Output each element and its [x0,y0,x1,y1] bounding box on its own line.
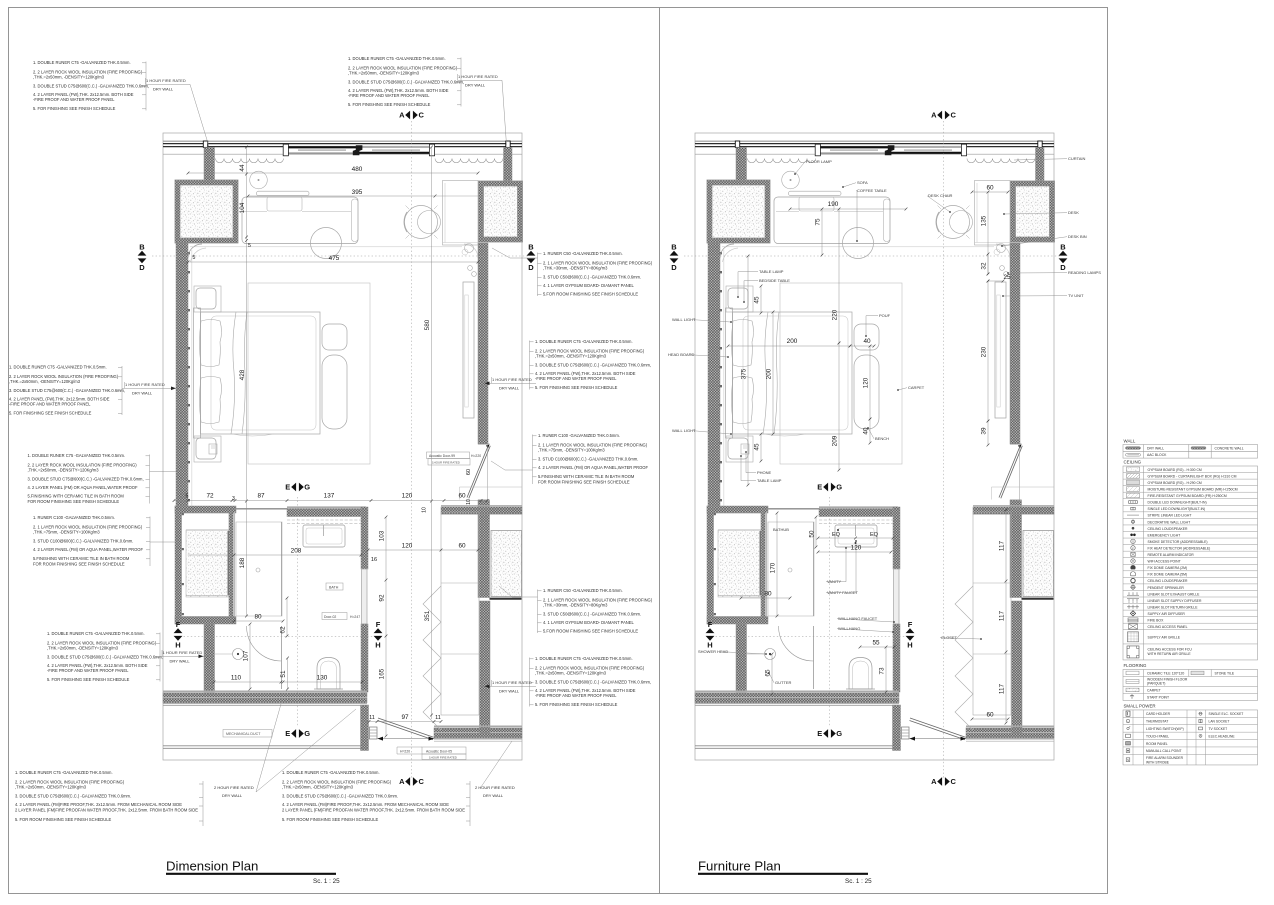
svg-text:209: 209 [832,435,839,446]
svg-text:H=247: H=247 [350,615,360,619]
svg-text:51: 51 [280,670,287,678]
svg-text:PENDENT SPRINKLER: PENDENT SPRINKLER [1148,586,1185,590]
svg-text:WALL: WALL [1124,439,1136,444]
svg-text:5. FOR FINISHING SEE FINISH SC: 5. FOR FINISHING SEE FINISH SCHEDULE [535,385,618,390]
svg-text:COFFEE TABLE: COFFEE TABLE [857,188,887,193]
svg-text:3. DOUBLE STUD C75@600(C.C.) -: 3. DOUBLE STUD C75@600(C.C.) -GALVANIZED… [28,477,144,482]
svg-text:-FIRE PROOF AND WATER PROOF PA: -FIRE PROOF AND WATER PROOF PANEL [348,93,430,98]
svg-text:MANUALL CALL POINT: MANUALL CALL POINT [1146,749,1181,753]
svg-text:WITH STROBE: WITH STROBE [1146,760,1170,764]
svg-text:2 LAYER PANEL (FM)FIRE PROOFAN: 2 LAYER PANEL (FM)FIRE PROOFAN WATER PRO… [282,808,465,813]
svg-text:DRY WALL: DRY WALL [483,793,504,798]
svg-text:H: H [707,640,712,649]
svg-text:B: B [528,242,534,251]
svg-text:E: E [285,483,290,492]
svg-text:PHONE: PHONE [757,470,772,475]
svg-text:SUPPLY AIR DIFFUSER: SUPPLY AIR DIFFUSER [1148,612,1186,616]
svg-text:4. 2 LAYER PANEL (FM) OR AQUA: 4. 2 LAYER PANEL (FM) OR AQUA PANEL,WATE… [33,547,143,552]
svg-text:FOR ROOM FINISHING SEE FINISH: FOR ROOM FINISHING SEE FINISH SCHEDULE [28,499,120,504]
svg-text:C: C [950,111,956,120]
svg-text:,THK.=75mm, -DENSITY=100Kg/m3: ,THK.=75mm, -DENSITY=100Kg/m3 [538,448,605,453]
svg-text:,THK.=30mm, -DENSITY=80Kg/m3: ,THK.=30mm, -DENSITY=80Kg/m3 [543,266,608,271]
svg-text:3: 3 [232,496,235,502]
svg-text:STRIPE LINEAR LED LIGHT: STRIPE LINEAR LED LIGHT [1148,514,1192,518]
svg-text:4. 2 LAYER PANEL (FM) OR AQUA: 4. 2 LAYER PANEL (FM) OR AQUA PANEL,WATE… [538,465,648,470]
svg-text:165: 165 [379,668,386,679]
svg-text:SOFA: SOFA [857,180,868,185]
svg-text:ROOM PANEL: ROOM PANEL [1146,742,1168,746]
svg-text:3. DOUBLE STUD C75@600(C.C.) -: 3. DOUBLE STUD C75@600(C.C.) -GALVANIZED… [348,80,464,85]
svg-text:117: 117 [999,540,1006,551]
svg-text:FIX DOME CAMERA (5M): FIX DOME CAMERA (5M) [1148,573,1188,577]
svg-text:,THK.=2x50mm, -DENSITY=120Kg/m: ,THK.=2x50mm, -DENSITY=120Kg/m3 [348,71,420,76]
svg-text:60: 60 [458,493,466,500]
svg-text:135: 135 [981,215,988,226]
svg-text:170: 170 [770,562,777,573]
svg-text:120: 120 [863,377,870,388]
svg-text:50: 50 [809,530,816,538]
svg-text:DESK: DESK [1068,210,1079,215]
svg-text:SMOKE DETECTOR (ADDRESSABLE): SMOKE DETECTOR (ADDRESSABLE) [1148,540,1208,544]
svg-text:WALL LIGHT: WALL LIGHT [672,317,696,322]
svg-text:-FIRE PROOF AND WATER PROOF PA: -FIRE PROOF AND WATER PROOF PANEL [535,693,617,698]
svg-text:C: C [418,777,424,786]
svg-text:200: 200 [787,338,798,345]
svg-text:A: A [399,111,405,120]
svg-text:FOR ROOM FINISHING SEE FINISH: FOR ROOM FINISHING SEE FINISH SCHEDULE [538,480,630,485]
svg-text:,THK.=2x50mm, -DENSITY=120Kg/m: ,THK.=2x50mm, -DENSITY=120Kg/m3 [535,671,607,676]
svg-text:5. FOR FINISHING SEE FINISH SC: 5. FOR FINISHING SEE FINISH SCHEDULE [47,677,130,682]
svg-text:73: 73 [879,667,886,675]
svg-text:97: 97 [401,714,409,721]
svg-text:60: 60 [466,469,472,475]
svg-text:TV SOCKET: TV SOCKET [1209,727,1228,731]
svg-text:C: C [950,777,956,786]
svg-text:1. DOUBLE RUNER C75 -GALVANIZE: 1. DOUBLE RUNER C75 -GALVANIZED THK.0.5m… [28,453,126,458]
svg-text:STONE TILE: STONE TILE [1215,671,1235,675]
svg-text:3. DOUBLE STUD C75@600(C.C.) -: 3. DOUBLE STUD C75@600(C.C.) -GALVANIZED… [282,794,398,799]
svg-text:A: A [931,777,937,786]
svg-text:120: 120 [402,493,413,500]
svg-text:60: 60 [458,543,466,550]
svg-text:LINEAR SLOT SUPPLY DIFFUSER: LINEAR SLOT SUPPLY DIFFUSER [1148,599,1202,603]
svg-text:CEILING ACCESS PANEL: CEILING ACCESS PANEL [1148,625,1188,629]
svg-text:H: H [175,640,180,649]
svg-text:1. DOUBLE RUNER C75 -GALVANIZE: 1. DOUBLE RUNER C75 -GALVANIZED THK.0.5m… [348,56,446,61]
svg-text:5. FOR ROOM FINISHING SEE FINI: 5. FOR ROOM FINISHING SEE FINISH SCHEDUL… [15,817,111,822]
svg-text:80: 80 [254,614,262,621]
svg-text:-FIRE PROOF AND WATER PROOF PA: -FIRE PROOF AND WATER PROOF PANEL [33,97,115,102]
svg-text:-FIRE PROOF AND WATER PROOF PA: -FIRE PROOF AND WATER PROOF PANEL [535,376,617,381]
svg-text:DRY WALL: DRY WALL [132,390,153,395]
svg-text:F: F [376,620,381,629]
svg-text:75: 75 [815,218,822,226]
svg-text:SINGLE LED DOWNLIGHT(BUILT-IN): SINGLE LED DOWNLIGHT(BUILT-IN) [1148,507,1206,511]
svg-text:3. DOUBLE STUD C75@600(C.C.) -: 3. DOUBLE STUD C75@600(C.C.) -GALVANIZED… [15,794,131,799]
svg-text:Door-02: Door-02 [324,615,336,619]
svg-text:580: 580 [424,319,431,330]
svg-text:351: 351 [424,610,431,621]
svg-text:A: A [931,111,937,120]
svg-text:1. DOUBLE RUNER C75 -GALVANIZE: 1. DOUBLE RUNER C75 -GALVANIZED THK.0.5m… [47,631,145,636]
svg-text:THERMOSTAT: THERMOSTAT [1146,720,1168,724]
svg-text:FLOOR LAMP: FLOOR LAMP [806,159,832,164]
svg-text:F: F [176,620,181,629]
svg-text:4. 2 LAYER PANEL (FM)FIRE PROO: 4. 2 LAYER PANEL (FM)FIRE PROOF,THK. 2x1… [282,802,449,807]
svg-text:1. RUNER C100 -GALVANIZED THK.: 1. RUNER C100 -GALVANIZED THK.0.5mm. [33,515,115,520]
svg-text:55: 55 [872,640,880,647]
svg-text:120: 120 [851,545,862,552]
svg-text:40: 40 [863,427,870,435]
svg-text:60: 60 [986,712,994,719]
svg-text:3. STUD C100@600(C.C.) -GALVAN: 3. STUD C100@600(C.C.) -GALVANIZED THK.0… [33,539,133,544]
svg-text:110: 110 [231,675,242,682]
svg-text:40: 40 [863,338,871,345]
svg-text:1 HOUR FIRE RATED: 1 HOUR FIRE RATED [492,680,532,685]
svg-text:1. DOUBLE RUNER C75 -GALVANIZE: 1. DOUBLE RUNER C75 -GALVANIZED THK.0.5m… [535,656,633,661]
svg-text:1. DOUBLE RUNER C75 -GALVANIZE: 1. DOUBLE RUNER C75 -GALVANIZED THK.0.5m… [9,365,107,370]
svg-text:5: 5 [248,243,251,249]
svg-text:B: B [1060,242,1066,251]
svg-text:WALL LIGHT: WALL LIGHT [672,428,696,433]
svg-text:BATHUB: BATHUB [773,527,789,532]
svg-text:3. DOUBLE STUD C75@600(C.C.) -: 3. DOUBLE STUD C75@600(C.C.) -GALVANIZED… [47,655,163,660]
svg-text:S: S [1132,540,1134,544]
svg-text:DRY WALL: DRY WALL [499,385,520,390]
svg-text:3. STUD C50@600(C.C.) -GALVANI: 3. STUD C50@600(C.C.) -GALVANIZED THK.0.… [543,275,641,280]
svg-text:65: 65 [765,669,772,677]
svg-text:11: 11 [435,715,441,721]
svg-text:-FIRE PROOF AND WATER PROOF PA: -FIRE PROOF AND WATER PROOF PANEL [47,668,129,673]
svg-text:11: 11 [369,715,375,721]
svg-text:TOUCH PANEL: TOUCH PANEL [1146,734,1169,738]
svg-text:E: E [817,729,822,738]
svg-text:1. DOUBLE RUNER C75 -GALVANIZE: 1. DOUBLE RUNER C75 -GALVANIZED THK.0.5m… [282,770,380,775]
svg-text:READING LAMPS: READING LAMPS [1068,270,1101,275]
svg-text:428: 428 [239,369,246,380]
svg-text:1 HOUR FIRE RATED: 1 HOUR FIRE RATED [146,78,186,83]
svg-text:ELEC.HEADLINE: ELEC.HEADLINE [1209,734,1236,738]
svg-text:92: 92 [379,594,386,602]
svg-text:A: A [399,777,405,786]
svg-text:1. DOUBLE RUNER C75 -GALVANIZE: 1. DOUBLE RUNER C75 -GALVANIZED THK.0.5m… [15,770,113,775]
svg-text:5.FINISHING WITH CERAMIC TILE: 5.FINISHING WITH CERAMIC TILE IN BATH RO… [33,556,130,561]
svg-text:1 HOUR FIRE RATED: 1 HOUR FIRE RATED [163,650,203,655]
svg-text:4. 1 LAYER GYPSUM BOARD- DIAMA: 4. 1 LAYER GYPSUM BOARD- DIAMANT PANEL [543,283,634,288]
svg-text:137: 137 [324,493,335,500]
svg-text:Sc. 1 : 25: Sc. 1 : 25 [313,878,340,885]
svg-text:,THK.=75mm, -DENSITY=100Kg/m3: ,THK.=75mm, -DENSITY=100Kg/m3 [33,530,100,535]
svg-text:5. FOR FINISHING SEE FINISH SC: 5. FOR FINISHING SEE FINISH SCHEDULE [9,411,92,416]
svg-text:GYPSUM BOARD - CURTAIN/LIGHT B: GYPSUM BOARD - CURTAIN/LIGHT BOX (RG) H:… [1148,474,1237,478]
svg-text:DOUBLE LED DOWNLIGHT(BUILT-IN): DOUBLE LED DOWNLIGHT(BUILT-IN) [1148,501,1207,505]
svg-text:HEAD BOARD: HEAD BOARD [668,352,695,357]
svg-text:,THK.=2x50mm, -DENSITY=120Kg/m: ,THK.=2x50mm, -DENSITY=120Kg/m3 [535,354,607,359]
svg-text:,THK.=2x50mm, -DENSITY=120Kg/m: ,THK.=2x50mm, -DENSITY=120Kg/m3 [15,785,87,790]
svg-text:5: 5 [186,494,189,500]
svg-text:104: 104 [239,202,246,213]
svg-text:5. FOR FINISHING SEE FINISH SC: 5. FOR FINISHING SEE FINISH SCHEDULE [348,102,431,107]
svg-text:,THK.=2x50mm, -DENSITY=120Kg/m: ,THK.=2x50mm, -DENSITY=120Kg/m3 [9,379,81,384]
svg-text:190: 190 [828,201,839,208]
svg-text:CEILING ACCESS FOR FCU: CEILING ACCESS FOR FCU [1148,648,1193,652]
svg-text:39: 39 [981,427,988,435]
svg-text:F: F [908,620,913,629]
svg-text:LIGHTING SWITCH(W.P): LIGHTING SWITCH(W.P) [1146,727,1184,731]
svg-text:E: E [817,483,822,492]
svg-text:AAC BLOCK: AAC BLOCK [1147,453,1167,457]
svg-text:62: 62 [280,626,287,634]
svg-text:5.FINISHING WITH CERAMIC TILE: 5.FINISHING WITH CERAMIC TILE IN BATH RO… [538,474,635,479]
svg-text:230: 230 [981,346,988,357]
svg-text:WALLHANG FAUCET: WALLHANG FAUCET [838,616,878,621]
svg-text:EQ: EQ [832,532,841,538]
svg-text:START POINT: START POINT [1147,696,1169,700]
svg-text:1HOUR FIRE RATED: 1HOUR FIRE RATED [432,461,460,465]
svg-text:2 HOUR FIRE RATED: 2 HOUR FIRE RATED [214,785,254,790]
svg-text:FIRE-RESISTANT GYPSUM BOARD (F: FIRE-RESISTANT GYPSUM BOARD (FR) H:250CM [1148,494,1227,498]
svg-text:EMERGENCY LIGHT: EMERGENCY LIGHT [1148,533,1181,537]
svg-text:LINEAR SLOT EXHAUST GRILLE: LINEAR SLOT EXHAUST GRILLE [1148,592,1201,596]
svg-text:4. 1 LAYER GYPSUM BOARD- DIAMA: 4. 1 LAYER GYPSUM BOARD- DIAMANT PANEL [543,620,634,625]
svg-text:DRY WALL: DRY WALL [153,86,174,91]
svg-text:,THK.=2x50mm, -DENSITY=120Kg/m: ,THK.=2x50mm, -DENSITY=120Kg/m3 [28,468,100,473]
svg-text:S: S [1127,758,1129,762]
svg-text:H: H [375,640,380,649]
svg-text:10: 10 [466,499,472,505]
svg-text:E: E [285,729,290,738]
svg-text:EQ: EQ [870,532,879,538]
svg-text:Acoustic Door-99: Acoustic Door-99 [429,454,455,458]
svg-text:130: 130 [317,675,328,682]
svg-text:3. DOUBLE STUD C75@600(C.C.) -: 3. DOUBLE STUD C75@600(C.C.) -GALVANIZED… [33,84,149,89]
svg-text:,THK.=30mm, -DENSITY=80Kg/m3: ,THK.=30mm, -DENSITY=80Kg/m3 [543,603,608,608]
svg-text:MOISTURE-RESISTANT GYPSUM BOAR: MOISTURE-RESISTANT GYPSUM BOARD (MR) H:2… [1148,488,1238,492]
svg-text:1. DOUBLE RUNER C75 -GALVANIZE: 1. DOUBLE RUNER C75 -GALVANIZED THK.0.5m… [33,60,131,65]
svg-text:Acoustic Door-05: Acoustic Door-05 [426,749,452,753]
svg-text:,THK.=2x50mm, -DENSITY=120Kg/m: ,THK.=2x50mm, -DENSITY=120Kg/m3 [282,785,354,790]
svg-text:80: 80 [764,591,772,598]
svg-text:FLOORING: FLOORING [1124,663,1148,668]
svg-text:FOR ROOM FINISHING SEE FINISH: FOR ROOM FINISHING SEE FINISH SCHEDULE [33,562,125,567]
svg-text:D: D [139,263,145,272]
svg-text:3. DOUBLE STUD C75@600(C.C.) -: 3. DOUBLE STUD C75@600(C.C.) -GALVANIZED… [9,388,125,393]
svg-text:(PARQUET): (PARQUET) [1147,682,1165,686]
svg-text:H=220: H=220 [471,454,481,458]
svg-text:DRY WALL: DRY WALL [170,658,191,663]
svg-text:F: F [708,620,713,629]
svg-text:H: H [907,640,912,649]
svg-text:TABLE LAMP: TABLE LAMP [759,269,784,274]
svg-text:4. 2 LAYER PANEL (FM)FIRE PROO: 4. 2 LAYER PANEL (FM)FIRE PROOF,THK. 2x1… [15,802,182,807]
svg-text:5.FINISHING WITH CERAMIC TILE: 5.FINISHING WITH CERAMIC TILE IN BATH RO… [28,494,125,499]
svg-text:45: 45 [754,296,761,304]
svg-text:DECORATIVE WALL LIGHT: DECORATIVE WALL LIGHT [1148,520,1191,524]
svg-text:5.FOR ROOM FINISHING SEE FINIS: 5.FOR ROOM FINISHING SEE FINISH SCHEDULE [543,292,638,297]
svg-text:1. RUNER C50 -GALVANIZED THK.0: 1. RUNER C50 -GALVANIZED THK.0.5mm. [543,251,623,256]
svg-text:CEILING LOUDSPEAKER: CEILING LOUDSPEAKER [1148,527,1188,531]
svg-text:Dimension Plan: Dimension Plan [166,859,258,874]
svg-text:25: 25 [1003,274,1011,281]
svg-text:1 HOUR FIRE RATED: 1 HOUR FIRE RATED [125,382,165,387]
svg-text:DRY WALL: DRY WALL [499,688,520,693]
svg-text:72: 72 [206,493,214,500]
svg-text:H=220: H=220 [400,749,410,753]
svg-text:G: G [304,483,310,492]
svg-text:480: 480 [352,166,363,173]
svg-text:3. STUD C50@600(C.C.) -GALVANI: 3. STUD C50@600(C.C.) -GALVANIZED THK.0.… [543,612,641,617]
svg-text:DRY WALL: DRY WALL [222,793,243,798]
svg-text:87: 87 [257,493,265,500]
svg-text:WIFI ACCESS POINT: WIFI ACCESS POINT [1148,560,1181,564]
svg-text:CEILING: CEILING [1124,460,1142,465]
svg-text:D: D [528,263,534,272]
svg-text:220: 220 [832,309,839,320]
svg-text:1. DOUBLE RUNER C75 -GALVANIZE: 1. DOUBLE RUNER C75 -GALVANIZED THK.0.5m… [535,339,633,344]
svg-text:117: 117 [999,610,1006,621]
svg-text:CLOSET: CLOSET [941,635,958,640]
svg-text:1 HOUR FIRE RATED: 1 HOUR FIRE RATED [492,377,532,382]
svg-text:C: C [418,111,424,120]
svg-text:16: 16 [371,557,377,563]
svg-text:G: G [836,729,842,738]
svg-text:375: 375 [741,368,748,379]
svg-text:3. DOUBLE STUD C75@600(C.C.) -: 3. DOUBLE STUD C75@600(C.C.) -GALVANIZED… [535,680,651,685]
svg-text:B: B [139,242,145,251]
svg-text:10: 10 [422,507,428,513]
svg-text:CERAMIC TILE 120*120: CERAMIC TILE 120*120 [1147,671,1184,675]
svg-text:D: D [671,263,677,272]
svg-text:-FIRE PROOF AND WATER PROOF PA: -FIRE PROOF AND WATER PROOF PANEL [9,402,91,407]
svg-text:SMALL POWER: SMALL POWER [1124,703,1156,708]
svg-text:120: 120 [402,543,413,550]
svg-text:GUTTER: GUTTER [775,680,792,685]
svg-text:LINEAR SLOT RETURN GRILLE: LINEAR SLOT RETURN GRILLE [1148,605,1199,609]
svg-text:475: 475 [329,255,340,262]
svg-text:1. RUNER C50 -GALVANIZED THK.0: 1. RUNER C50 -GALVANIZED THK.0.5mm. [543,588,623,593]
svg-text:200: 200 [766,368,773,379]
svg-text:DESK BIN: DESK BIN [1068,234,1087,239]
svg-text:208: 208 [291,548,302,555]
svg-text:DESK CHAIR: DESK CHAIR [928,193,953,198]
svg-text:FIRE BOX: FIRE BOX [1148,619,1165,623]
svg-text:REMOTE ALARM INDICATOR: REMOTE ALARM INDICATOR [1148,553,1195,557]
svg-text:1HOUR FIRE RATED: 1HOUR FIRE RATED [429,755,457,759]
svg-text:Furniture Plan: Furniture Plan [698,859,781,874]
svg-text:FIX HEAT DETECTOR (ADDRESSABLE: FIX HEAT DETECTOR (ADDRESSABLE) [1148,546,1211,550]
svg-text:G: G [304,729,310,738]
svg-text:BATH: BATH [329,585,339,589]
svg-text:CEILING LOUDSPEAKER: CEILING LOUDSPEAKER [1148,579,1188,583]
svg-text:POUF: POUF [879,313,891,318]
svg-text:TABLE LAMP: TABLE LAMP [757,478,782,483]
svg-text:107: 107 [243,650,250,661]
svg-text:DRY WALL: DRY WALL [1147,446,1164,450]
svg-text:1 HOUR FIRE RATED: 1 HOUR FIRE RATED [458,74,498,79]
svg-text:GYPSUM BOARD (RG) - H:300 CM: GYPSUM BOARD (RG) - H:300 CM [1148,468,1202,472]
svg-text:,THK.=2x50mm, -DENSITY=120Kg/m: ,THK.=2x50mm, -DENSITY=120Kg/m3 [33,75,105,80]
svg-text:103: 103 [379,530,386,541]
svg-text:TV UNIT: TV UNIT [1068,293,1084,298]
svg-text:SUPPLY AIR GRILLE: SUPPLY AIR GRILLE [1148,635,1181,639]
svg-text:CARPET: CARPET [908,385,925,390]
svg-text:44: 44 [239,164,246,172]
svg-text:G: G [836,483,842,492]
svg-text:3. DOUBLE STUD C75@600(C.C.) -: 3. DOUBLE STUD C75@600(C.C.) -GALVANIZED… [535,363,651,368]
svg-text:GYPSUM BOARD (RG) - H:290 CM: GYPSUM BOARD (RG) - H:290 CM [1148,481,1202,485]
svg-text:5: 5 [193,255,196,261]
svg-text:5. FOR FINISHING SEE FINISH SC: 5. FOR FINISHING SEE FINISH SCHEDULE [535,702,618,707]
svg-text:1. RUNER C100 -GALVANIZED THK.: 1. RUNER C100 -GALVANIZED THK.0.5mm. [538,433,620,438]
svg-text:WALLHANG: WALLHANG [838,626,860,631]
svg-text:5. FOR FINISHING SEE FINISH SC: 5. FOR FINISHING SEE FINISH SCHEDULE [33,106,116,111]
svg-text:B: B [671,242,677,251]
svg-text:CONCRETE WALL: CONCRETE WALL [1215,446,1244,450]
svg-text:Sc. 1 : 25: Sc. 1 : 25 [845,878,872,885]
svg-text:SHOWER HEAD: SHOWER HEAD [698,649,728,654]
svg-text:BEDSIDE TABLE: BEDSIDE TABLE [759,278,790,283]
svg-text:395: 395 [352,189,363,196]
svg-text:117: 117 [999,683,1006,694]
svg-text:60: 60 [986,185,994,192]
svg-text:188: 188 [239,557,246,568]
svg-text:CURTAIN: CURTAIN [1068,156,1086,161]
svg-text:4. 2 LAYER PANEL (FM) OR AQUA: 4. 2 LAYER PANEL (FM) OR AQUA PANEL,WATE… [28,485,138,490]
svg-text:32: 32 [981,262,988,270]
svg-text:D: D [1060,263,1066,272]
svg-text:MECHANICAL DUCT: MECHANICAL DUCT [226,732,261,736]
svg-text:FIX DOME CAMERA (2M): FIX DOME CAMERA (2M) [1148,566,1188,570]
svg-text:5. FOR ROOM FINISHING SEE FINI: 5. FOR ROOM FINISHING SEE FINISH SCHEDUL… [282,817,378,822]
svg-text:2 HOUR FIRE RATED: 2 HOUR FIRE RATED [475,785,515,790]
svg-text:BENCH: BENCH [875,436,889,441]
svg-text:DRY WALL: DRY WALL [465,82,486,87]
svg-text:LAN SOCKET: LAN SOCKET [1209,720,1230,724]
svg-text:45: 45 [754,443,761,451]
svg-text:2 LAYER PANEL (FM)FIRE PROOFAN: 2 LAYER PANEL (FM)FIRE PROOFAN WATER PRO… [15,808,198,813]
svg-text:,THK.=2x50mm, -DENSITY=120Kg/m: ,THK.=2x50mm, -DENSITY=120Kg/m3 [47,646,119,651]
svg-text:CARD HOLDER: CARD HOLDER [1146,712,1171,716]
svg-text:5.FOR ROOM FINISHING SEE FINIS: 5.FOR ROOM FINISHING SEE FINISH SCHEDULE [543,629,638,634]
svg-text:F: F [1132,546,1134,550]
svg-text:WITH RETURN AIR GRILLE: WITH RETURN AIR GRILLE [1148,652,1192,656]
svg-text:3. STUD C100@600(C.C.) -GALVAN: 3. STUD C100@600(C.C.) -GALVANIZED THK.0… [538,457,638,462]
svg-text:CARPET: CARPET [1147,689,1161,693]
svg-text:SINGLE ELC. SOCKET: SINGLE ELC. SOCKET [1209,712,1244,716]
